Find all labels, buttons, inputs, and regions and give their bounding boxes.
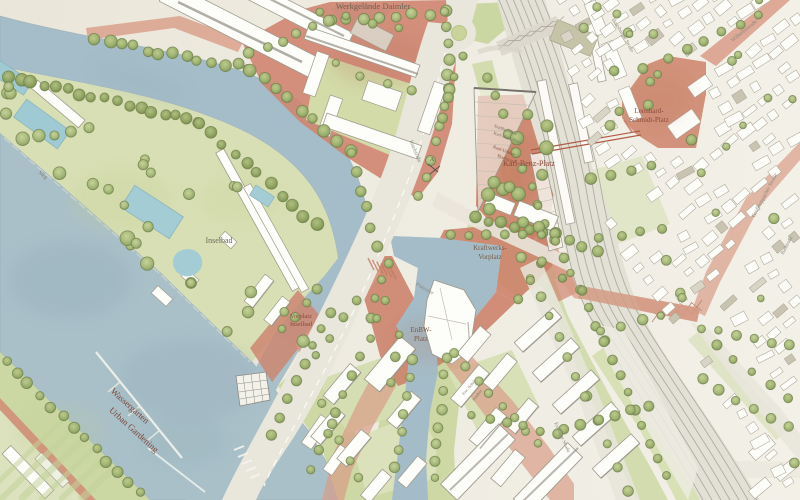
svg-text:A: A [430, 156, 435, 163]
svg-text:Inselbad: Inselbad [205, 236, 232, 245]
svg-text:Vorplatz: Vorplatz [290, 313, 312, 320]
svg-text:Schmidt-Platz: Schmidt-Platz [629, 116, 669, 124]
svg-text:Werkgelände Daimler: Werkgelände Daimler [336, 1, 411, 11]
svg-text:Leonhard-: Leonhard- [634, 107, 664, 115]
svg-text:EnBW-: EnBW- [411, 326, 433, 334]
svg-text:Vorplatz: Vorplatz [478, 253, 502, 261]
svg-text:Inselbad: Inselbad [290, 321, 313, 328]
svg-text:Kraftwerks-: Kraftwerks- [473, 244, 507, 252]
svg-text:Platz: Platz [414, 335, 428, 343]
